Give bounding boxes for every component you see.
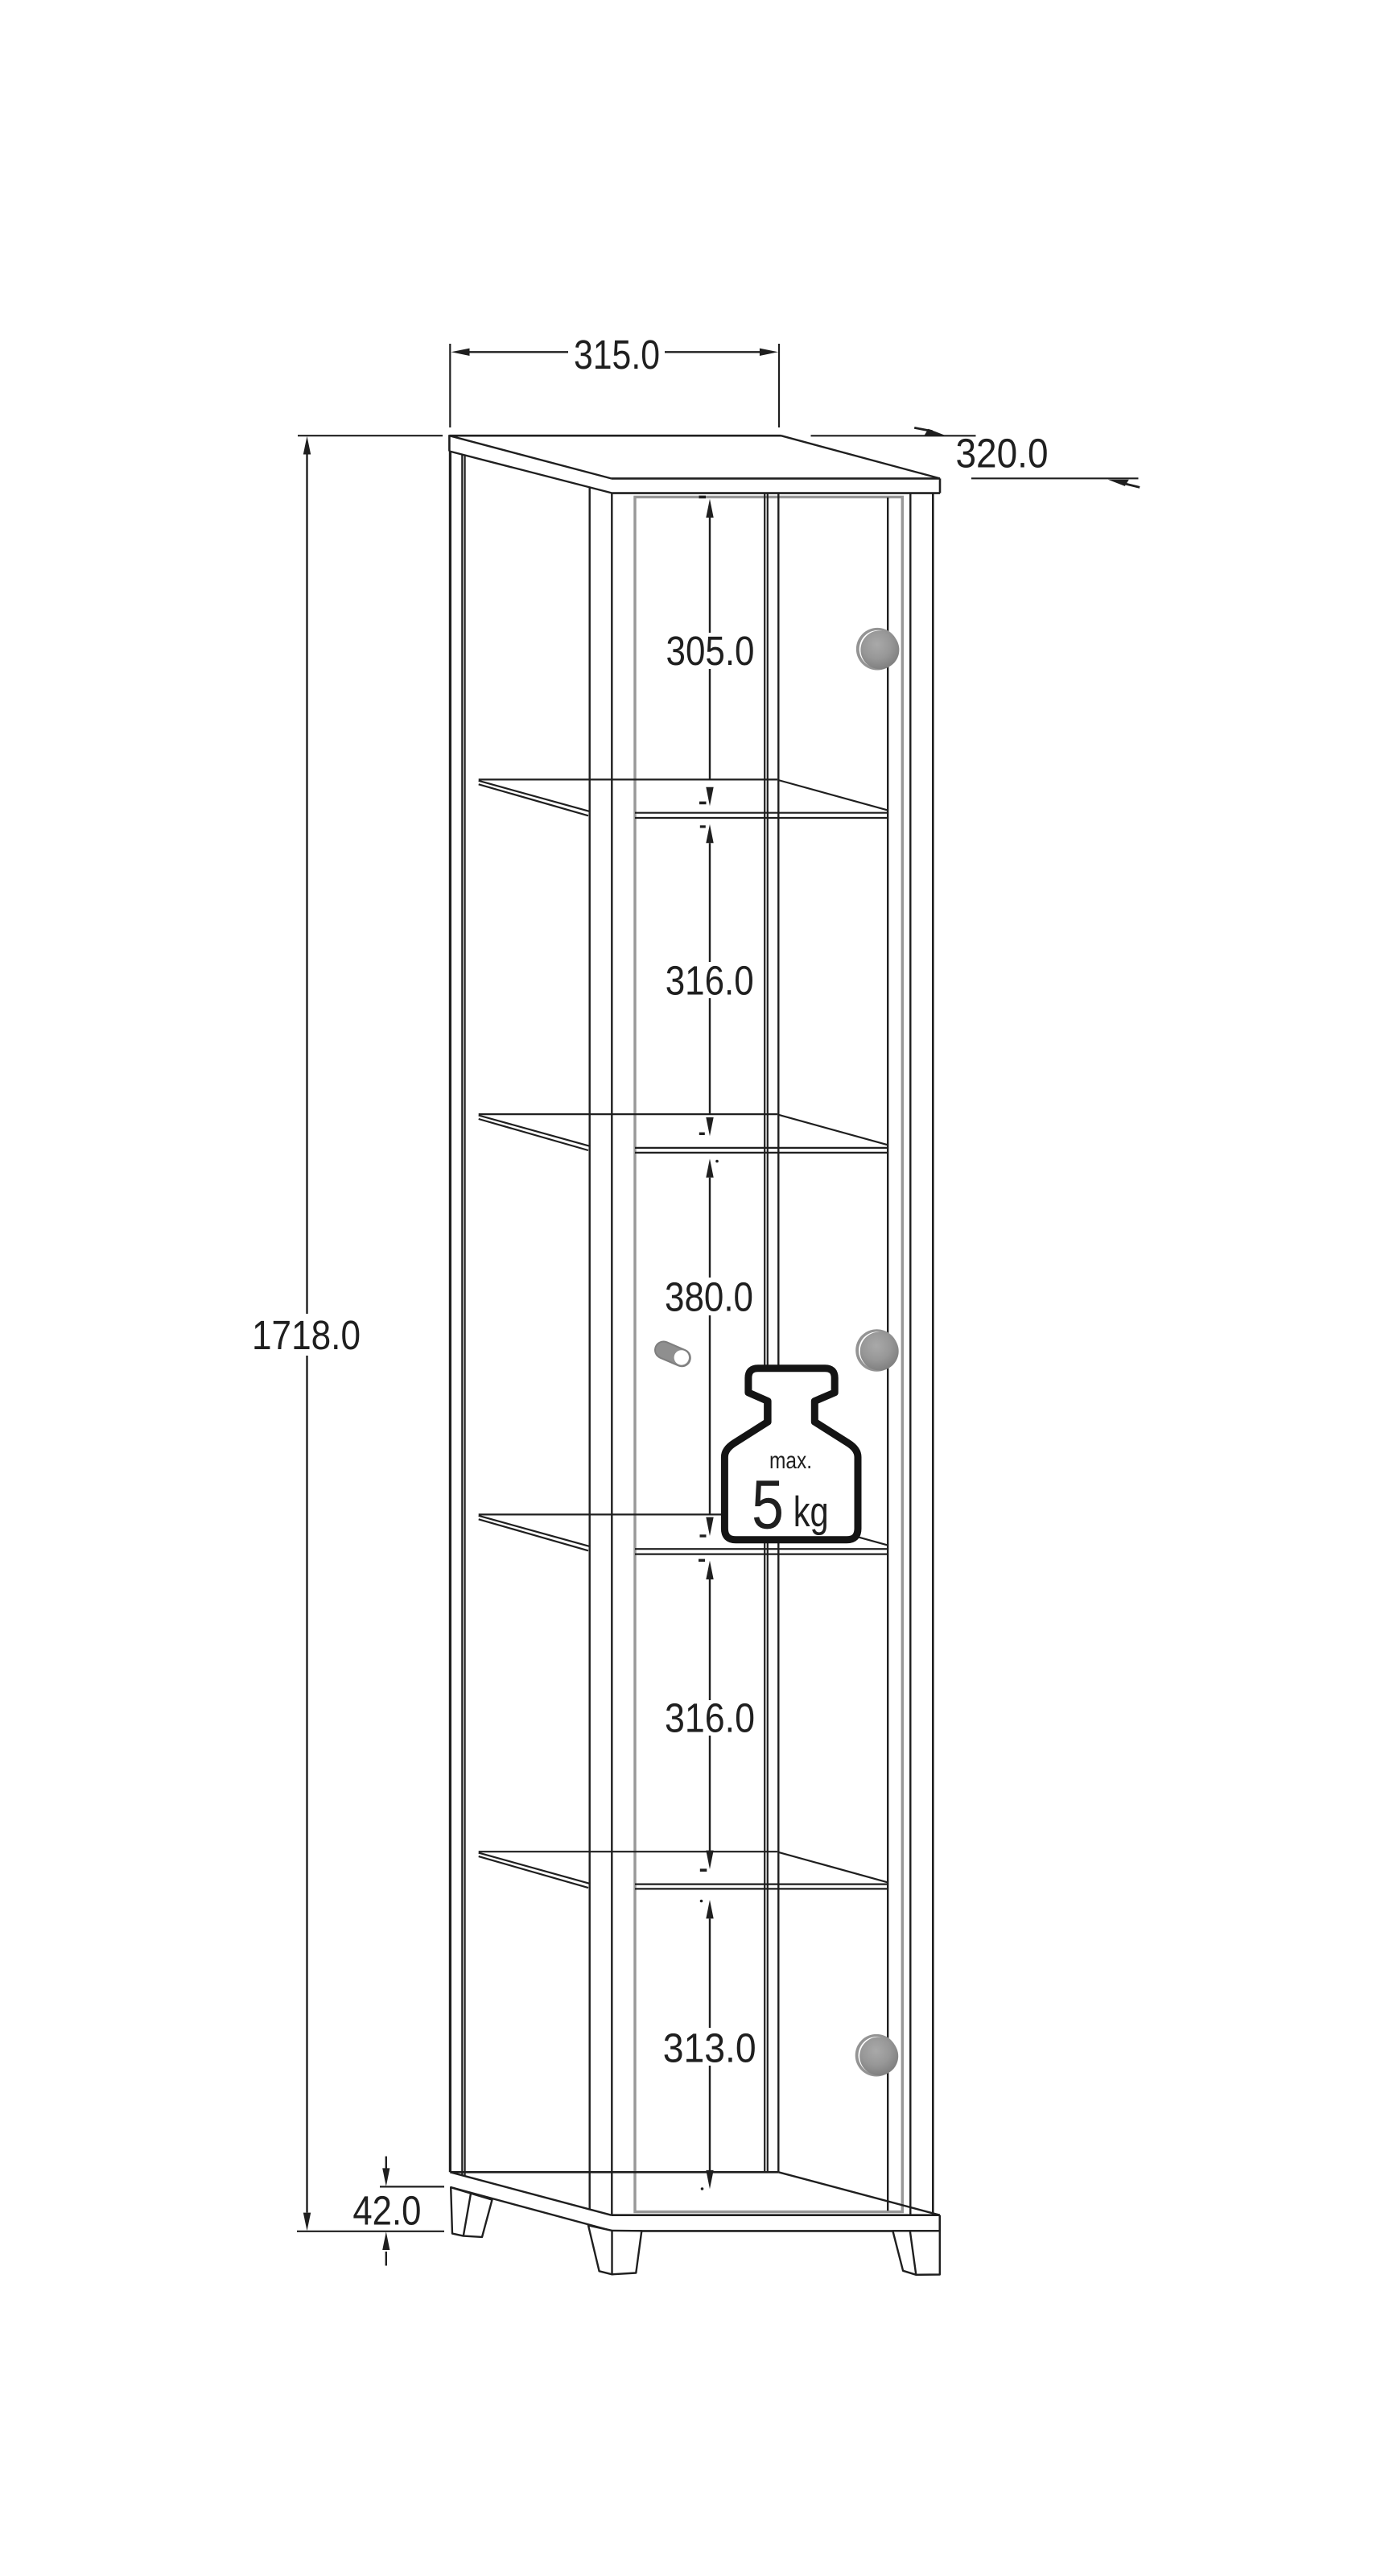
svg-text:5: 5 bbox=[752, 1467, 784, 1544]
svg-text:kg: kg bbox=[793, 1488, 829, 1536]
svg-text:320.0: 320.0 bbox=[956, 430, 1049, 476]
svg-text:380.0: 380.0 bbox=[665, 1274, 753, 1319]
svg-text:316.0: 316.0 bbox=[666, 957, 754, 1003]
svg-text:305.0: 305.0 bbox=[666, 628, 755, 674]
svg-text:313.0: 313.0 bbox=[663, 2025, 756, 2071]
svg-text:316.0: 316.0 bbox=[665, 1695, 755, 1740]
svg-text:42.0: 42.0 bbox=[352, 2188, 421, 2234]
svg-text:1718.0: 1718.0 bbox=[252, 1312, 361, 1358]
svg-text:315.0: 315.0 bbox=[574, 332, 660, 378]
